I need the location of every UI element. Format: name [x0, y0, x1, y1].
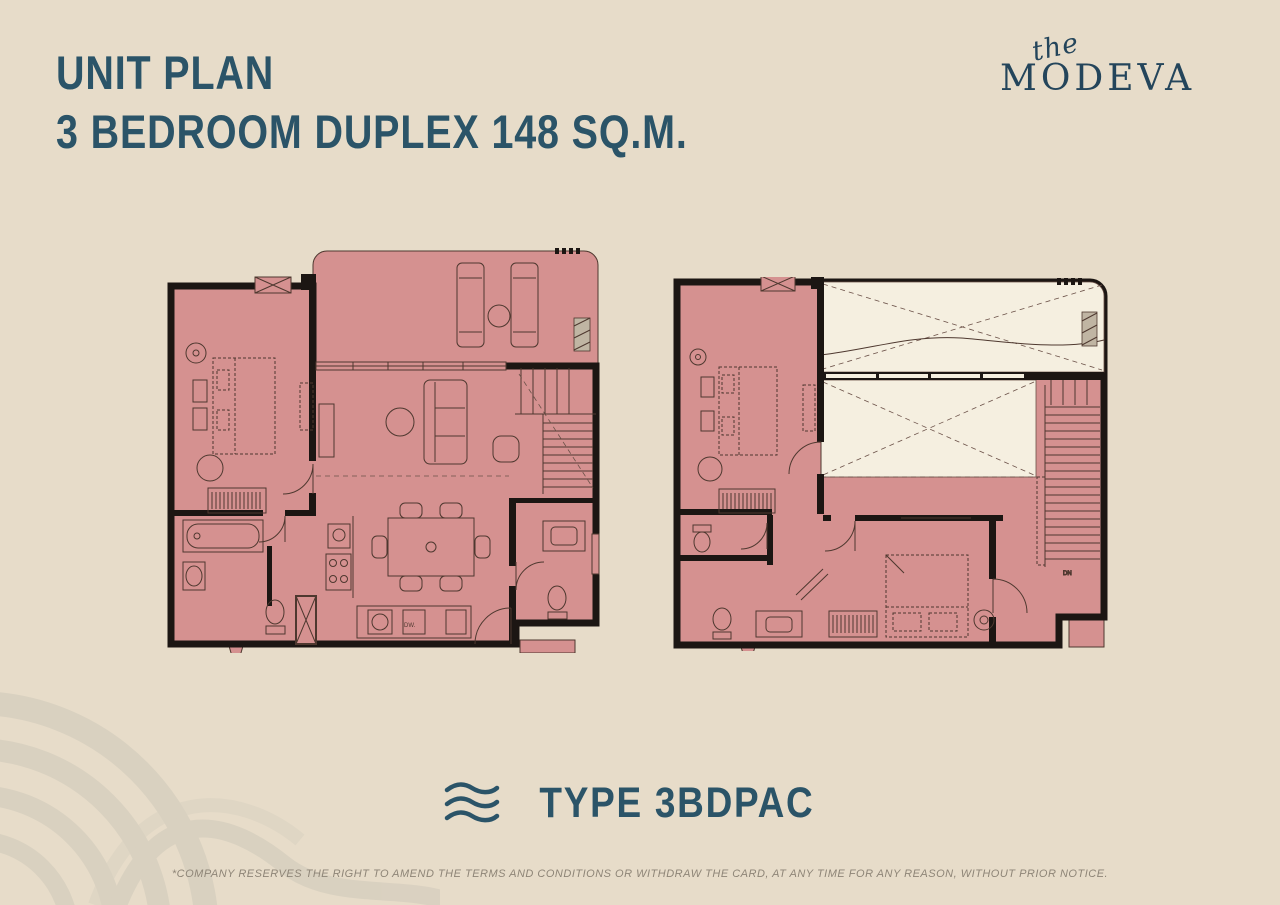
stairs-down-label: DN: [1063, 571, 1072, 577]
ac-unit: [1082, 312, 1097, 346]
window-wc: [592, 534, 599, 574]
page-title: UNIT PLAN 3 BEDROOM DUPLEX 148 SQ.M.: [56, 44, 688, 162]
type-label: TYPE 3BDPAC: [539, 779, 814, 828]
floor-plan-second-floor: DN: [671, 277, 1111, 651]
unit-plan-page: UNIT PLAN 3 BEDROOM DUPLEX 148 SQ.M. the…: [0, 0, 1280, 905]
window-bedroom2: [761, 277, 795, 291]
balcony: [313, 248, 598, 366]
entry-recess: [1069, 617, 1104, 647]
entry-recess: [520, 640, 575, 653]
logo-brand-name: MODEVA: [1000, 58, 1190, 99]
dishwasher-label: DW.: [404, 623, 416, 629]
title-line-2: 3 BEDROOM DUPLEX 148 SQ.M.: [56, 103, 688, 162]
floor-plan-first-floor: DW.: [163, 246, 615, 653]
void-window-band: [821, 372, 1104, 380]
ac-unit: [574, 318, 590, 351]
shaft: [296, 596, 316, 644]
type-badge: TYPE 3BDPAC: [0, 779, 1280, 828]
window-bedroom1: [255, 277, 291, 293]
waves-icon: [443, 781, 501, 827]
sliding-window-balcony: [316, 362, 506, 370]
title-line-1: UNIT PLAN: [56, 44, 688, 103]
disclaimer-text: *COMPANY RESERVES THE RIGHT TO AMEND THE…: [0, 868, 1280, 880]
